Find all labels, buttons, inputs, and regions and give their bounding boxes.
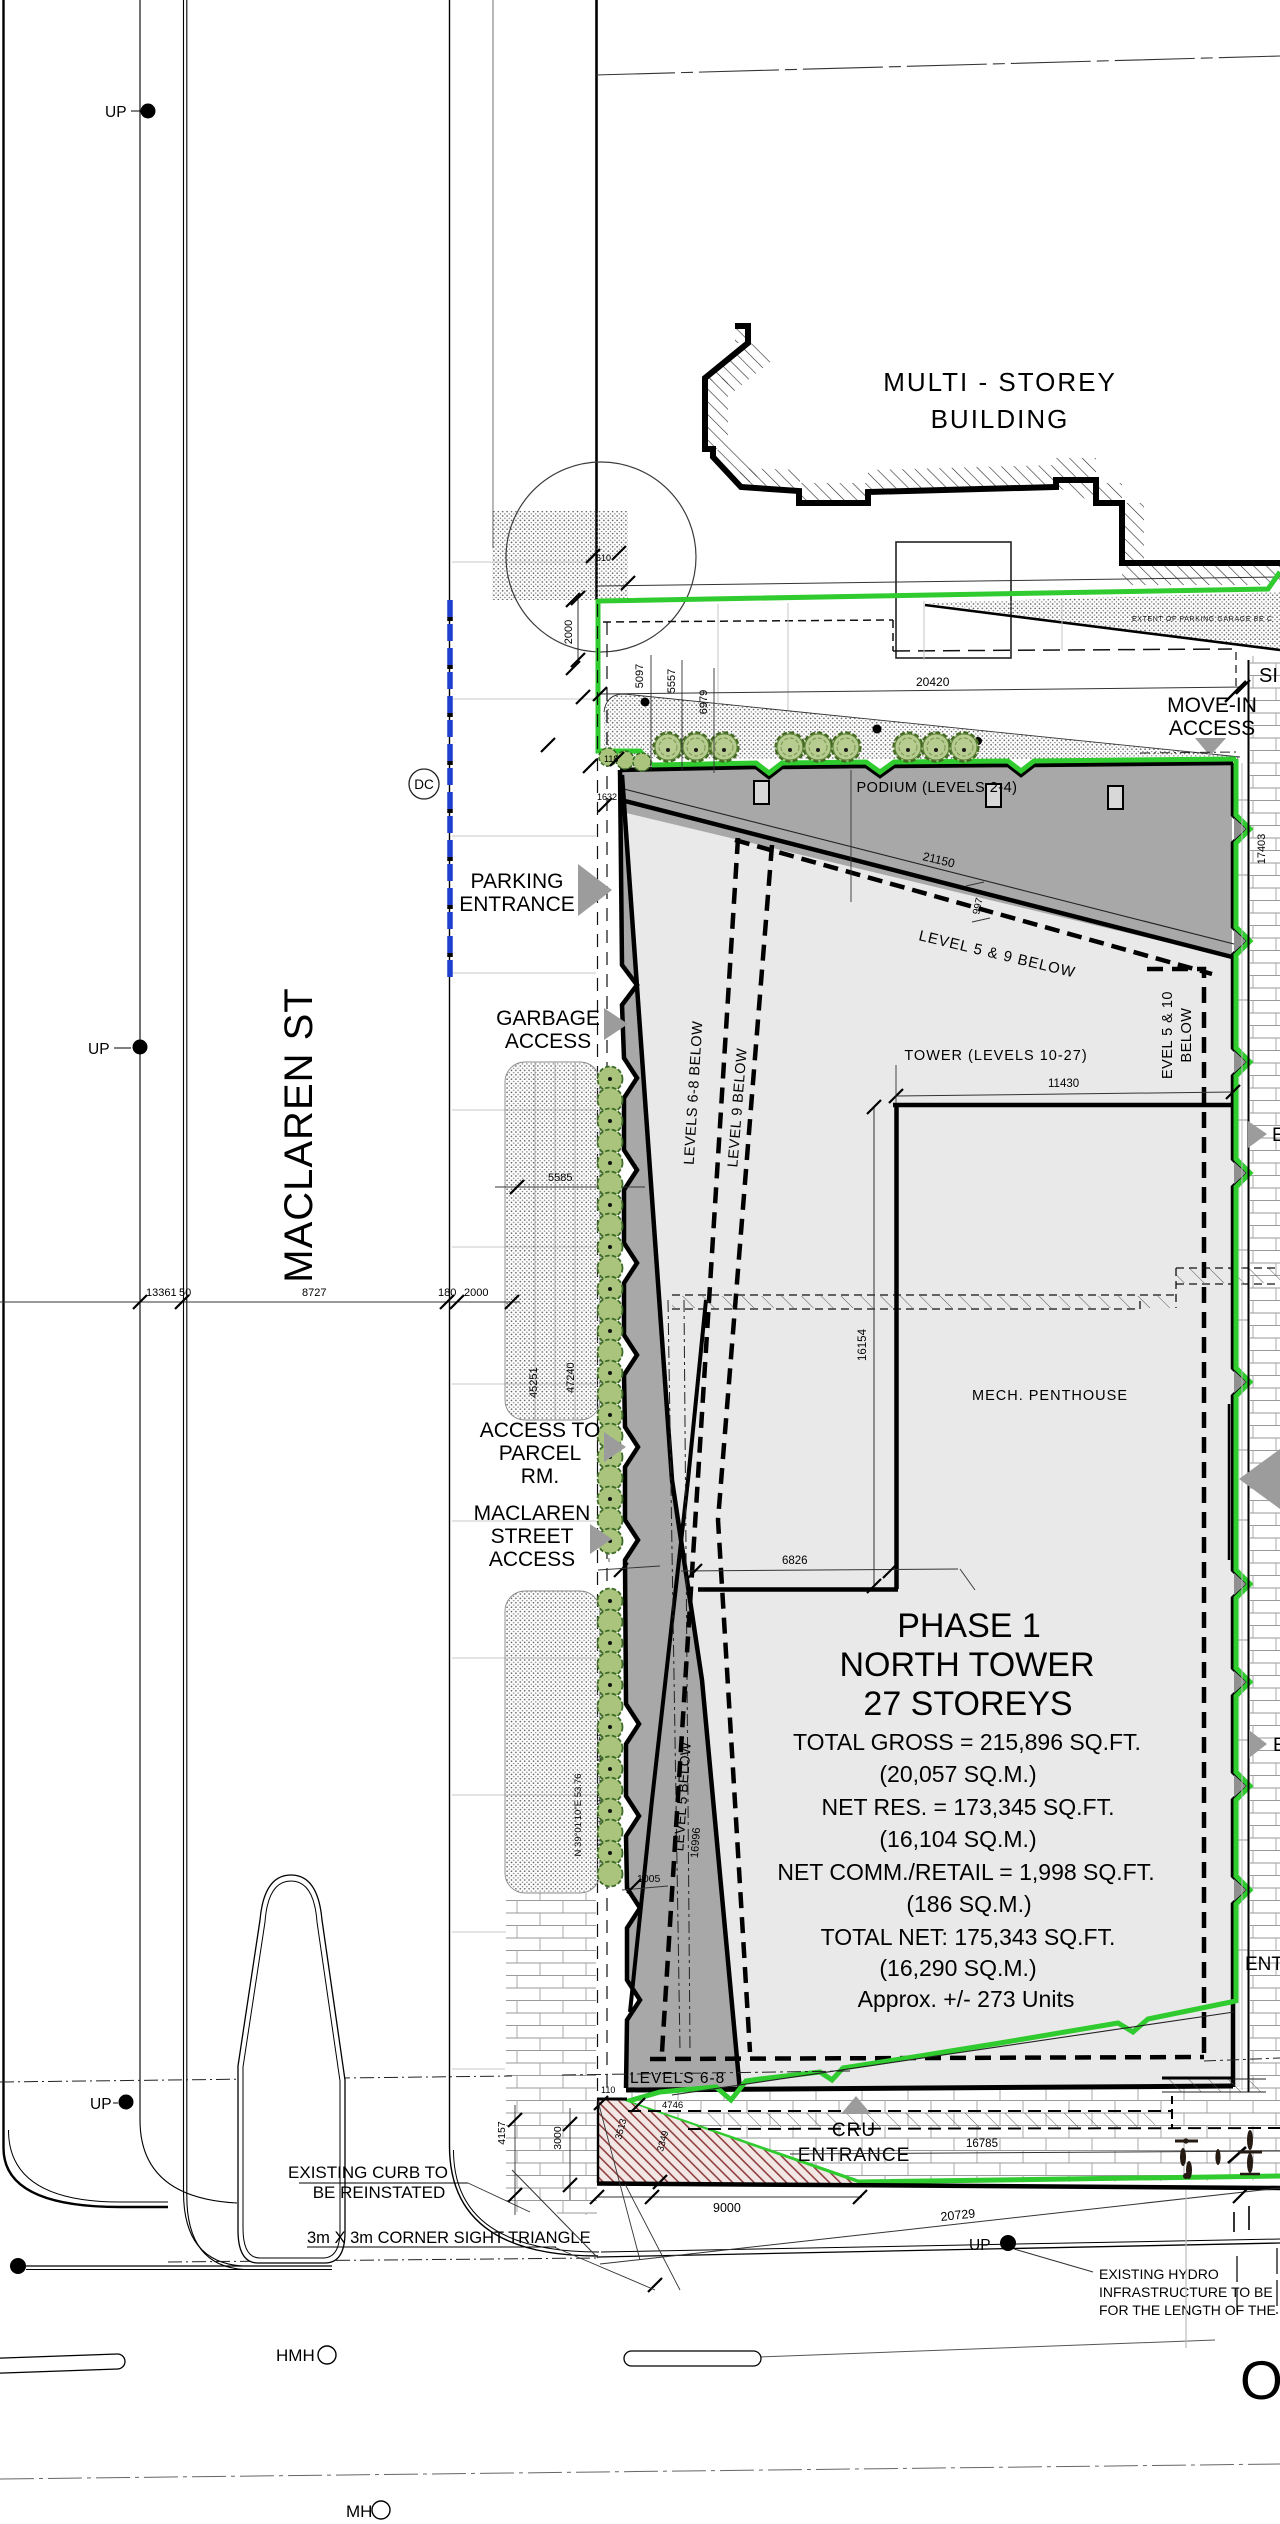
svg-text:(16,104 SQ.M.): (16,104 SQ.M.) bbox=[879, 1826, 1036, 1852]
svg-text:(20,057 SQ.M.): (20,057 SQ.M.) bbox=[879, 1761, 1036, 1787]
svg-text:13361: 13361 bbox=[146, 1287, 177, 1299]
svg-text:3000: 3000 bbox=[552, 2126, 564, 2150]
svg-text:DC: DC bbox=[414, 777, 434, 792]
svg-text:5097: 5097 bbox=[634, 664, 646, 688]
svg-text:MOVE-IN: MOVE-IN bbox=[1167, 694, 1257, 717]
svg-text:MH: MH bbox=[346, 2502, 372, 2521]
svg-text:1632: 1632 bbox=[597, 792, 617, 802]
svg-text:PODIUM (LEVELS 2-4): PODIUM (LEVELS 2-4) bbox=[857, 780, 1018, 796]
svg-text:3m X 3m CORNER SIGHT TRIANGLE: 3m X 3m CORNER SIGHT TRIANGLE bbox=[307, 2229, 591, 2247]
svg-text:(16,290 SQ.M.): (16,290 SQ.M.) bbox=[879, 1955, 1036, 1981]
svg-text:NET COMM./RETAIL = 1,998 SQ.FT: NET COMM./RETAIL = 1,998 SQ.FT. bbox=[777, 1859, 1154, 1885]
svg-text:FOR THE LENGTH OF THE: FOR THE LENGTH OF THE bbox=[1099, 2302, 1276, 2318]
svg-text:STREET: STREET bbox=[491, 1525, 574, 1548]
svg-text:EVEL 5 & 10: EVEL 5 & 10 bbox=[1160, 991, 1176, 1079]
svg-text:27 STOREYS: 27 STOREYS bbox=[863, 1685, 1072, 1723]
svg-text:20420: 20420 bbox=[916, 675, 950, 689]
svg-text:2000: 2000 bbox=[464, 1287, 488, 1299]
svg-text:LEVELS 6-8: LEVELS 6-8 bbox=[630, 2070, 725, 2087]
svg-text:HMH: HMH bbox=[276, 2346, 315, 2365]
svg-text:EXISTING HYDRO: EXISTING HYDRO bbox=[1099, 2266, 1219, 2282]
svg-text:UP: UP bbox=[88, 1041, 110, 1058]
svg-text:5557: 5557 bbox=[666, 669, 678, 693]
svg-text:47240: 47240 bbox=[565, 1362, 577, 1393]
svg-text:610: 610 bbox=[596, 553, 611, 563]
svg-text:4746: 4746 bbox=[662, 2100, 683, 2111]
svg-text:UP: UP bbox=[969, 2237, 991, 2254]
svg-text:ACCESS: ACCESS bbox=[489, 1548, 575, 1571]
svg-text:E: E bbox=[1272, 1125, 1280, 1146]
svg-text:NORTH TOWER: NORTH TOWER bbox=[839, 1646, 1094, 1684]
svg-text:CRU: CRU bbox=[832, 2120, 876, 2141]
svg-text:BE REINSTATED: BE REINSTATED bbox=[313, 2183, 446, 2202]
svg-text:4157: 4157 bbox=[496, 2121, 508, 2145]
svg-text:UP: UP bbox=[105, 104, 127, 121]
svg-text:9000: 9000 bbox=[713, 2201, 741, 2215]
svg-text:GARBAGE: GARBAGE bbox=[496, 1007, 600, 1030]
svg-text:ACCESS: ACCESS bbox=[1169, 717, 1255, 740]
svg-text:110: 110 bbox=[601, 2085, 615, 2095]
svg-text:E: E bbox=[1273, 1735, 1280, 1756]
svg-text:50: 50 bbox=[179, 1287, 191, 1299]
svg-text:MECH. PENTHOUSE: MECH. PENTHOUSE bbox=[972, 1388, 1128, 1404]
svg-text:PHASE 1: PHASE 1 bbox=[897, 1607, 1041, 1645]
svg-text:16785: 16785 bbox=[966, 2138, 998, 2150]
svg-text:MACLAREN: MACLAREN bbox=[474, 1502, 591, 1525]
svg-text:ENT: ENT bbox=[1245, 1954, 1280, 1975]
svg-text:ENTRANCE: ENTRANCE bbox=[798, 2145, 911, 2166]
svg-text:MULTI - STOREY: MULTI - STOREY bbox=[883, 367, 1117, 397]
svg-text:UP: UP bbox=[90, 2096, 112, 2113]
svg-text:RM.: RM. bbox=[521, 1465, 560, 1488]
svg-text:BELOW: BELOW bbox=[1179, 1008, 1195, 1063]
svg-text:118: 118 bbox=[604, 754, 618, 764]
svg-text:6979: 6979 bbox=[698, 690, 710, 714]
svg-text:Approx. +/- 273 Units: Approx. +/- 273 Units bbox=[858, 1986, 1075, 2012]
svg-text:N 39°01'10"E 53.76: N 39°01'10"E 53.76 bbox=[573, 1774, 584, 1857]
svg-text:NET RES. = 173,345 SQ.FT.: NET RES. = 173,345 SQ.FT. bbox=[822, 1794, 1115, 1820]
svg-text:2000: 2000 bbox=[563, 620, 575, 644]
svg-text:6826: 6826 bbox=[782, 1555, 808, 1567]
svg-text:PARCEL: PARCEL bbox=[499, 1442, 581, 1465]
svg-text:180: 180 bbox=[438, 1287, 456, 1299]
svg-text:MACLAREN ST: MACLAREN ST bbox=[277, 987, 321, 1283]
svg-text:16996: 16996 bbox=[689, 1827, 703, 1858]
svg-text:BUILDING: BUILDING bbox=[931, 404, 1070, 434]
svg-text:11430: 11430 bbox=[1048, 1078, 1079, 1090]
svg-text:(186 SQ.M.): (186 SQ.M.) bbox=[906, 1891, 1031, 1917]
svg-text:TOTAL GROSS = 215,896 SQ.FT.: TOTAL GROSS = 215,896 SQ.FT. bbox=[793, 1729, 1141, 1755]
svg-text:ENTRANCE: ENTRANCE bbox=[459, 893, 575, 916]
svg-text:ACCESS TO: ACCESS TO bbox=[480, 1419, 601, 1442]
svg-text:ACCESS: ACCESS bbox=[505, 1030, 591, 1053]
svg-text:16154: 16154 bbox=[857, 1328, 869, 1361]
svg-text:5585: 5585 bbox=[548, 1172, 572, 1184]
svg-text:45251: 45251 bbox=[528, 1367, 540, 1398]
svg-text:PARKING: PARKING bbox=[471, 870, 564, 893]
svg-text:TOTAL NET: 175,343 SQ.FT.: TOTAL NET: 175,343 SQ.FT. bbox=[821, 1924, 1116, 1950]
svg-text:O': O' bbox=[1240, 2349, 1280, 2411]
svg-text:17403: 17403 bbox=[1256, 834, 1268, 865]
svg-text:EXISTING CURB TO: EXISTING CURB TO bbox=[288, 2163, 448, 2182]
svg-text:8727: 8727 bbox=[302, 1287, 326, 1299]
svg-text:TOWER (LEVELS 10-27): TOWER (LEVELS 10-27) bbox=[904, 1048, 1087, 1064]
svg-text:SI: SI bbox=[1259, 665, 1278, 687]
